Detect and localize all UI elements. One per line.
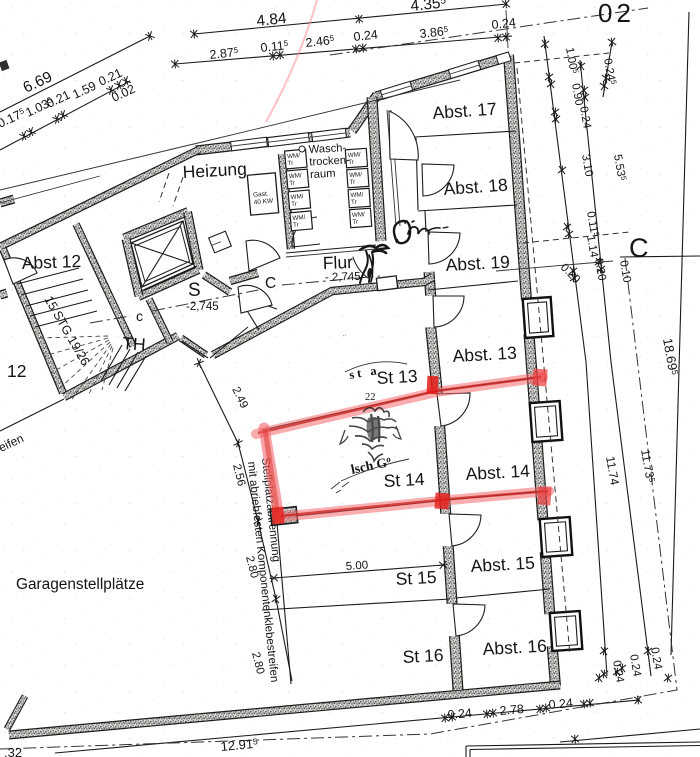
- svg-text:WM/: WM/: [290, 193, 304, 201]
- svg-text:WM/: WM/: [352, 211, 366, 219]
- svg-text:02: 02: [598, 0, 635, 28]
- svg-text:TH: TH: [122, 333, 147, 355]
- svg-text:Tr: Tr: [287, 160, 293, 167]
- svg-text:c: c: [136, 308, 143, 324]
- svg-text:22: 22: [365, 392, 376, 403]
- svg-text:0.24: 0.24: [491, 16, 517, 32]
- svg-text:0.24: 0.24: [548, 696, 574, 712]
- svg-text:Heizung: Heizung: [182, 159, 247, 182]
- svg-text:C: C: [629, 233, 649, 263]
- svg-text:Flur: Flur: [322, 252, 353, 273]
- svg-text:WM/: WM/: [287, 152, 301, 160]
- svg-text:12: 12: [7, 361, 26, 381]
- svg-text:- 2,745: - 2,745: [325, 271, 361, 284]
- svg-text:St 15: St 15: [395, 567, 437, 589]
- svg-text:Abst. 13: Abst. 13: [452, 343, 517, 366]
- svg-text:WM/: WM/: [292, 214, 306, 222]
- svg-text:.32: .32: [4, 745, 22, 757]
- svg-text:Tr: Tr: [293, 222, 299, 229]
- svg-text:St 14: St 14: [383, 469, 425, 491]
- svg-text:0.24: 0.24: [447, 706, 473, 722]
- svg-text:WM/: WM/: [350, 191, 364, 199]
- svg-text:St 16: St 16: [402, 645, 444, 667]
- svg-text:Tr: Tr: [349, 179, 355, 186]
- svg-text:C: C: [265, 275, 276, 292]
- svg-text:0.24: 0.24: [353, 28, 379, 44]
- svg-text:St 13: St 13: [376, 366, 418, 388]
- svg-text:Tr: Tr: [352, 219, 358, 226]
- svg-text:WM/: WM/: [289, 172, 303, 180]
- svg-text:Tr: Tr: [289, 180, 295, 187]
- svg-text:2.78: 2.78: [499, 702, 525, 718]
- svg-text:5.00: 5.00: [345, 559, 368, 573]
- svg-text:Abst. 16: Abst. 16: [482, 636, 547, 659]
- svg-text:S: S: [188, 280, 201, 301]
- svg-text:raum: raum: [310, 168, 336, 181]
- svg-text:Garagenstellplätze: Garagenstellplätze: [16, 576, 144, 593]
- svg-text:Tr: Tr: [351, 199, 357, 206]
- svg-text:Abst. 15: Abst. 15: [470, 553, 535, 576]
- svg-text:Tr: Tr: [291, 201, 297, 208]
- svg-text:trocken-: trocken-: [309, 154, 350, 168]
- svg-text:WM/: WM/: [349, 171, 363, 179]
- svg-text:4.84: 4.84: [256, 10, 288, 30]
- svg-text:Abst 12: Abst 12: [21, 251, 81, 273]
- svg-text:Abst. 19: Abst. 19: [445, 252, 510, 275]
- svg-text:-2,745: -2,745: [186, 301, 219, 313]
- svg-text:Abst. 14: Abst. 14: [465, 461, 530, 484]
